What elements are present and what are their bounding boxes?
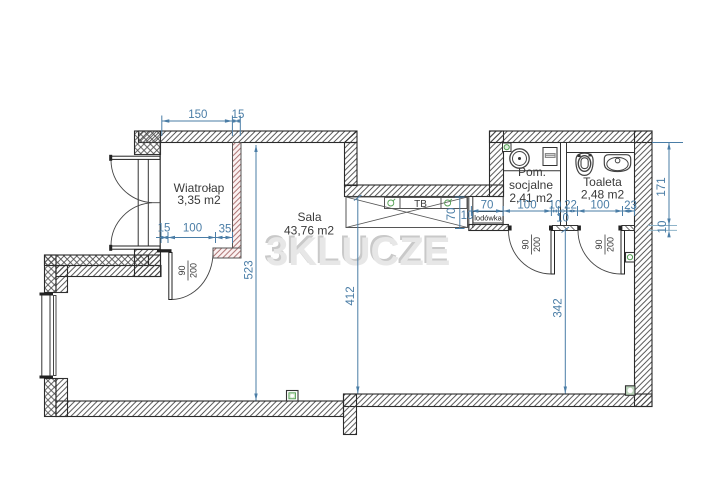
svg-text:523: 523 <box>244 260 256 279</box>
svg-text:22: 22 <box>564 200 577 212</box>
svg-text:10: 10 <box>461 210 474 222</box>
svg-text:100: 100 <box>590 200 609 212</box>
svg-text:socjalne: socjalne <box>509 178 553 192</box>
svg-text:90: 90 <box>521 239 531 249</box>
svg-text:TB: TB <box>414 199 427 210</box>
svg-text:10: 10 <box>549 200 562 212</box>
svg-text:200: 200 <box>532 237 542 252</box>
svg-text:171: 171 <box>656 177 668 196</box>
svg-text:200: 200 <box>189 263 199 278</box>
svg-text:43,76 m2: 43,76 m2 <box>284 224 334 238</box>
svg-text:90: 90 <box>594 239 604 249</box>
svg-text:70: 70 <box>481 200 494 212</box>
svg-text:342: 342 <box>553 298 565 317</box>
svg-text:90: 90 <box>177 265 187 275</box>
svg-text:Sala: Sala <box>297 210 321 224</box>
svg-text:Pom.: Pom. <box>518 165 546 179</box>
svg-text:100: 100 <box>517 200 536 212</box>
svg-text:412: 412 <box>345 286 357 305</box>
svg-text:150: 150 <box>188 109 207 121</box>
svg-text:200: 200 <box>606 237 616 252</box>
svg-text:23: 23 <box>624 200 637 212</box>
svg-text:3,35 m2: 3,35 m2 <box>177 193 221 207</box>
svg-text:70: 70 <box>446 208 458 221</box>
svg-text:100: 100 <box>183 223 202 235</box>
svg-text:10: 10 <box>657 221 669 234</box>
svg-text:lodówka: lodówka <box>474 214 502 223</box>
svg-text:35: 35 <box>219 224 232 236</box>
svg-text:10: 10 <box>556 213 569 225</box>
svg-text:15: 15 <box>158 223 171 235</box>
svg-text:15: 15 <box>232 109 245 121</box>
